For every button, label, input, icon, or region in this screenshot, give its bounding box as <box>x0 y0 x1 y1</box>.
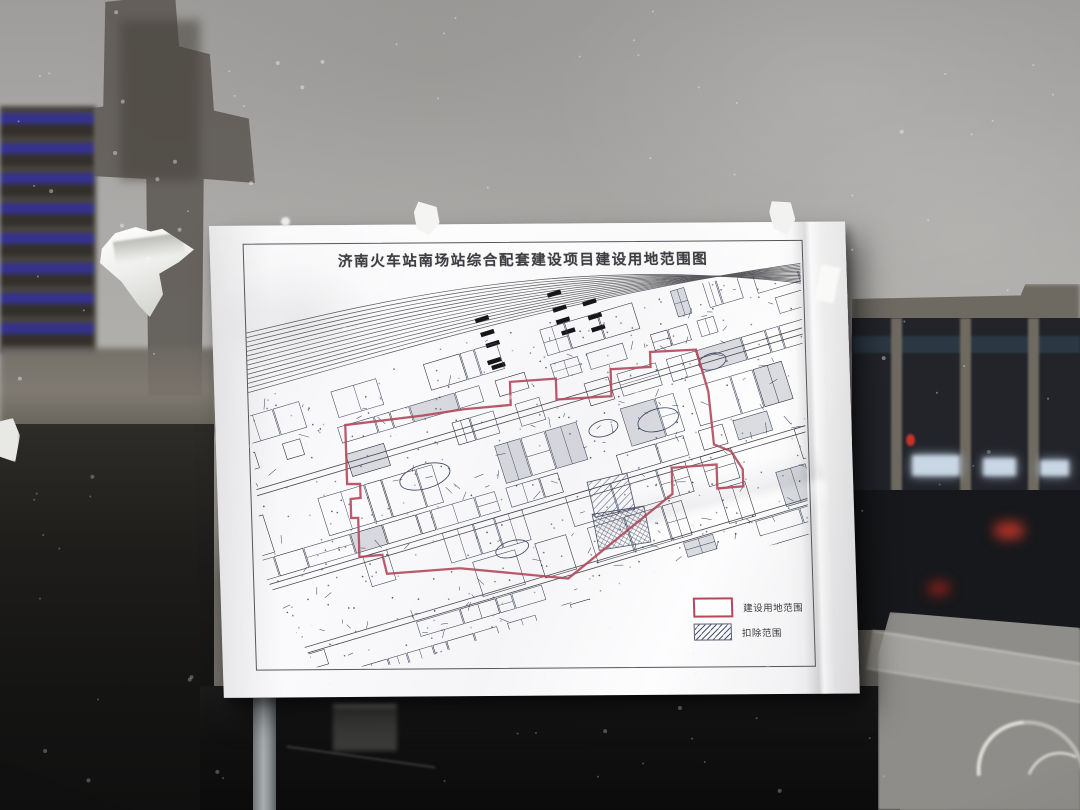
railway-track-fan <box>244 263 809 395</box>
legend-row-construction-land: 建设用地范围 <box>693 597 804 618</box>
map-legend: 建设用地范围 扣除范围 <box>693 597 813 660</box>
left-gray-band-reflection <box>0 348 216 434</box>
tape-fold-shadow <box>113 232 185 264</box>
posted-notice-paper: 济南火车站南场站综合配套建设项目建设用地范围图 建设用地范围 扣除范围 <box>209 222 860 698</box>
lit-sign-reflection-3 <box>1040 460 1069 476</box>
tower-reflection-shadow <box>120 20 200 180</box>
street-reflection <box>0 424 214 810</box>
right-mullion-1 <box>891 318 902 494</box>
photo-glass-door-with-posted-site-plan: 济南火车站南场站综合配套建设项目建设用地范围图 建设用地范围 扣除范围 <box>0 0 1080 810</box>
left-building-reflection <box>0 106 97 354</box>
right-mullion-3 <box>1028 318 1039 494</box>
right-mullion-2 <box>960 318 971 494</box>
legend-label: 建设用地范围 <box>743 600 803 614</box>
box-reflection <box>333 704 397 751</box>
red-light-reflection <box>906 434 915 446</box>
map-border-frame: 济南火车站南场站综合配套建设项目建设用地范围图 建设用地范围 扣除范围 <box>243 240 816 671</box>
red-outline-swatch <box>693 597 734 617</box>
map-title: 济南火车站南场站综合配套建设项目建设用地范围图 <box>244 247 803 272</box>
tail-light-glow-1 <box>994 522 1024 539</box>
window-mullion-bar <box>253 698 276 810</box>
right-lower-dark-reflection <box>852 490 1080 630</box>
legend-row-deduction: 扣除范围 <box>694 623 783 641</box>
dense-block-hatched <box>592 506 651 550</box>
hatch-swatch <box>694 623 733 640</box>
legend-label: 扣除范围 <box>742 625 782 639</box>
tail-light-glow-2 <box>928 582 950 595</box>
bottom-dark-reflection <box>200 686 900 810</box>
white-speck <box>281 217 290 226</box>
lit-sign-reflection-1 <box>912 455 960 476</box>
lit-sign-reflection-2 <box>983 458 1016 476</box>
